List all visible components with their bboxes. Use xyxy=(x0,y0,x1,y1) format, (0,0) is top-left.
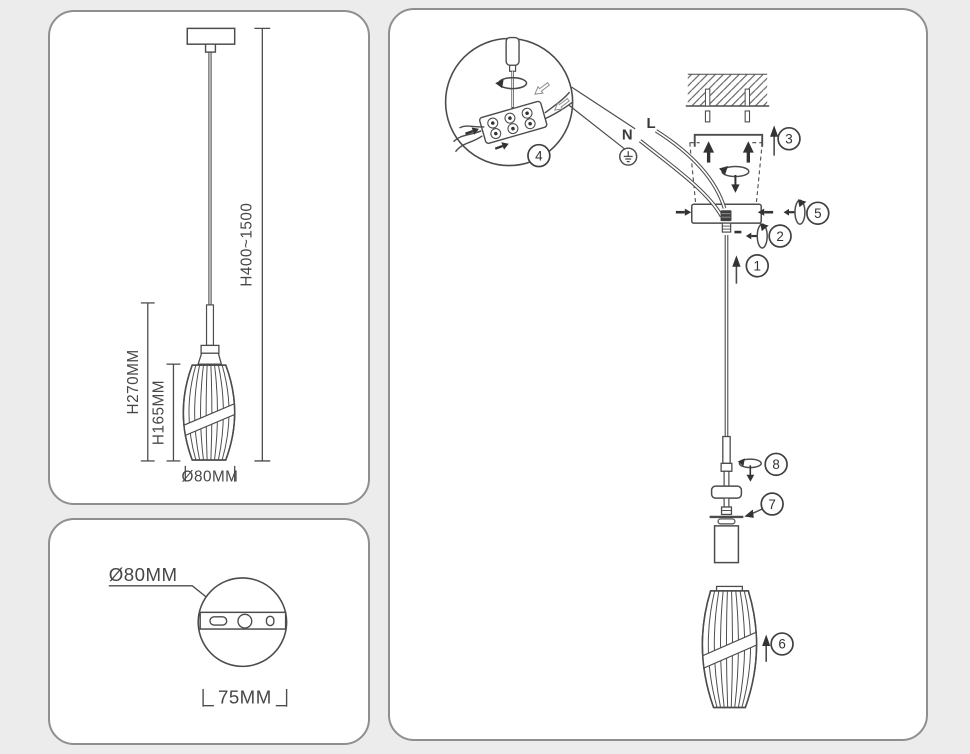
shade-height-label: H165MM xyxy=(151,380,168,445)
live-wire-label: L xyxy=(647,116,656,132)
socket-assembly xyxy=(710,437,744,563)
svg-text:2: 2 xyxy=(776,229,783,244)
step-5-rotation-icon xyxy=(784,199,807,224)
cord-grip xyxy=(721,210,732,232)
step-2-rotation-icon xyxy=(746,223,769,248)
glass-shade xyxy=(176,365,241,460)
svg-text:4: 4 xyxy=(535,148,543,163)
wall-anchors xyxy=(705,111,749,122)
svg-text:5: 5 xyxy=(814,206,821,221)
step-5-badge: 5 xyxy=(807,202,829,224)
canopy-side-screw xyxy=(676,209,691,216)
panel-dimension-view: H400~1500 H270MM H165MM Ø80MM xyxy=(48,10,370,505)
svg-text:3: 3 xyxy=(785,132,792,147)
panel-installation-steps: 4 N L 3 xyxy=(388,8,928,741)
dimension-shade-height: H165MM xyxy=(151,364,181,461)
canopy-diameter-label: Ø80MM xyxy=(109,564,178,585)
dimension-drawing: H400~1500 H270MM H165MM Ø80MM xyxy=(50,12,368,503)
ground-icon xyxy=(620,148,637,165)
canopy-top-view xyxy=(198,578,286,666)
mounting-screw xyxy=(743,141,754,162)
ceiling-plate xyxy=(187,28,234,52)
step-1-badge: 1 xyxy=(746,255,768,277)
leader-line xyxy=(109,586,207,598)
suspension-wire xyxy=(207,52,214,345)
step-8-badge: 8 xyxy=(765,453,787,475)
inset-leader-line xyxy=(569,105,625,149)
step-3-arrow-up xyxy=(770,125,778,155)
cable-hole xyxy=(238,614,252,628)
step-3-badge: 3 xyxy=(778,128,800,150)
fixture-height-label: H270MM xyxy=(125,349,142,414)
screw-rotation-icon xyxy=(719,166,749,193)
svg-text:8: 8 xyxy=(772,457,779,472)
mounting-screw xyxy=(703,141,714,162)
step-1-arrow-up xyxy=(732,255,740,283)
step-2-badge: 2 xyxy=(769,225,791,247)
glass-shade xyxy=(698,586,762,707)
canopy-top-drawing: Ø80MM 75MM xyxy=(50,520,368,743)
svg-text:7: 7 xyxy=(768,497,775,512)
shade-holder-disc xyxy=(712,486,742,498)
lamp-holder xyxy=(715,526,739,563)
screw-hole xyxy=(266,616,273,625)
neutral-wire-label: N xyxy=(622,128,633,144)
step-8-rotation-icon xyxy=(738,458,761,481)
mounting-slot xyxy=(210,617,227,625)
installation-drawing: 4 N L 3 xyxy=(390,10,926,739)
overall-height-label: H400~1500 xyxy=(238,203,255,287)
lock-dash xyxy=(734,231,741,234)
mounting-bracket xyxy=(695,135,762,147)
shade-cap xyxy=(198,345,221,364)
ceiling-hatch xyxy=(686,74,769,106)
step-6-arrow-up xyxy=(762,635,770,662)
svg-text:1: 1 xyxy=(754,259,761,274)
step-4-badge: 4 xyxy=(528,145,550,167)
mount-spacing-label: 75MM xyxy=(218,687,272,708)
shade-diameter-label: Ø80MM xyxy=(182,469,239,486)
svg-text:6: 6 xyxy=(778,637,785,652)
wiring-detail-inset: 4 xyxy=(446,38,573,167)
dimension-mount-spacing: 75MM xyxy=(203,687,287,708)
mains-wires xyxy=(640,131,724,216)
dimension-shade-diameter: Ø80MM xyxy=(182,466,239,486)
step-7-badge: 7 xyxy=(761,493,783,515)
inset-leader-line xyxy=(572,87,636,129)
suspension-wire xyxy=(725,235,728,436)
step-6-badge: 6 xyxy=(771,633,793,655)
panel-canopy-top-view: Ø80MM 75MM xyxy=(48,518,370,745)
dimension-overall-height: H400~1500 xyxy=(238,28,270,461)
step-7-arrow xyxy=(744,509,762,518)
